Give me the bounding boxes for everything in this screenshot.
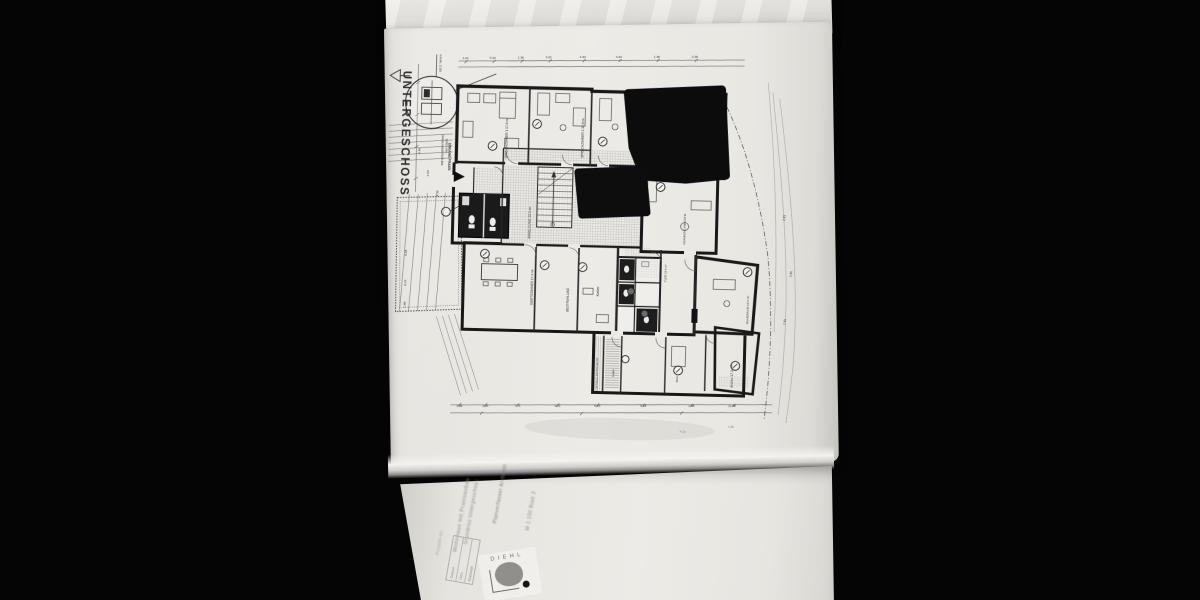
dim-labels-bottom: 1.38 2.26 7.74 1.63 5.49 9.48 1.38 11.48 (456, 404, 736, 408)
dim-label: 7.81 (782, 318, 787, 325)
page-curve-lines (760, 83, 801, 424)
dim-label: 1.63 (554, 404, 560, 408)
floor-plan: 1.01 5.23 1.38 2.01 1.63 4.23 1.38 3.38 … (384, 23, 835, 468)
detail-label-1: DREIKAMMERGRUBE (440, 135, 445, 166)
dim-label: 5.49 (594, 404, 600, 408)
dim-label: 1.38 (654, 55, 660, 59)
dim-label: 2.81 (782, 214, 787, 221)
room-label-bestrahlung: BESTRAHLUNG (566, 287, 571, 312)
room-label-abst: Abst. (675, 375, 679, 382)
dim-labels-top: 1.01 5.23 1.38 2.01 1.63 4.23 1.38 3.38 (463, 49, 698, 66)
dim-label: 5.23 (490, 56, 496, 60)
logo-lshape-icon (489, 566, 519, 593)
dim-label: 1.38 (518, 55, 524, 59)
dim-label: 4.23 (616, 55, 622, 59)
dim-label: 3.81 (788, 271, 793, 278)
note-luftung: LÜFTUNG LICHTSCHACHT (595, 357, 600, 391)
plan-title: UNTERGESCHOSS (397, 71, 412, 197)
vestibule-hatch (473, 167, 503, 194)
room-label-flur: FLUR 13.6 m² (663, 264, 667, 282)
dim-label: 3.38 (692, 55, 698, 59)
stairs (537, 167, 573, 228)
room-label-anmeldung: ANMELDUNG 22.9 m² (527, 207, 532, 239)
dim-label: 1.88 (403, 301, 407, 307)
note-kanal: KANAL ∅150 (438, 55, 442, 73)
plan-sheet: 1.01 5.23 1.38 2.01 1.63 4.23 1.38 3.38 … (384, 22, 839, 469)
dim-chain-top (458, 53, 744, 74)
room-label-archiv: Archiv 17.3 m² (730, 364, 735, 388)
black-wall-piece (691, 309, 697, 323)
room-label-lager: Lager (611, 369, 615, 377)
redaction-blob-2 (577, 168, 648, 217)
dim-label: 5.48 (404, 249, 408, 255)
wc-cluster (616, 257, 661, 334)
dim-labels-right: 2.81 3.81 7.81 4.13 1.88 (680, 212, 795, 436)
dim-label: 4.38 (435, 190, 439, 196)
room-label-keller: Keller (595, 286, 600, 297)
pencil-smudge (524, 416, 714, 443)
dim-label: 1.38 (688, 404, 694, 408)
dim-label: 1.38 (456, 404, 462, 408)
room-label-wartezimmer: WARTEZIMMER 17.4 m² (530, 269, 535, 305)
dim-label: 1.01 (463, 56, 469, 60)
architect-logo: DIEHL (478, 547, 543, 600)
dim-label: 7.74 (514, 404, 520, 408)
dim-label: 2.01 (546, 55, 552, 59)
dim-label: 2.63 (426, 170, 430, 176)
room-label-ruheraum: RUHERAUM 16.4 m² (745, 296, 750, 324)
dim-label: 11.48 (728, 404, 736, 408)
dim-label: 9.48 (640, 404, 646, 408)
entrance-label: EINGANG PRAXIS (447, 143, 452, 171)
logo-dot-icon (522, 580, 530, 588)
driveway-lines (434, 314, 480, 396)
dim-label: 9.48 (417, 148, 421, 154)
room-label-krankengymnastik: KRANKENGYMNASTIK (682, 213, 687, 244)
dim-label: 1.63 (580, 55, 586, 59)
dim-label: 2.26 (482, 404, 488, 408)
dim-label: 8.19 (403, 279, 407, 285)
photo-scene: 1.01 5.23 1.38 2.01 1.63 4.23 1.38 3.38 … (0, 0, 1200, 600)
entrance-arrow-icon (454, 171, 465, 182)
dim-label: 1.88 (728, 425, 734, 429)
